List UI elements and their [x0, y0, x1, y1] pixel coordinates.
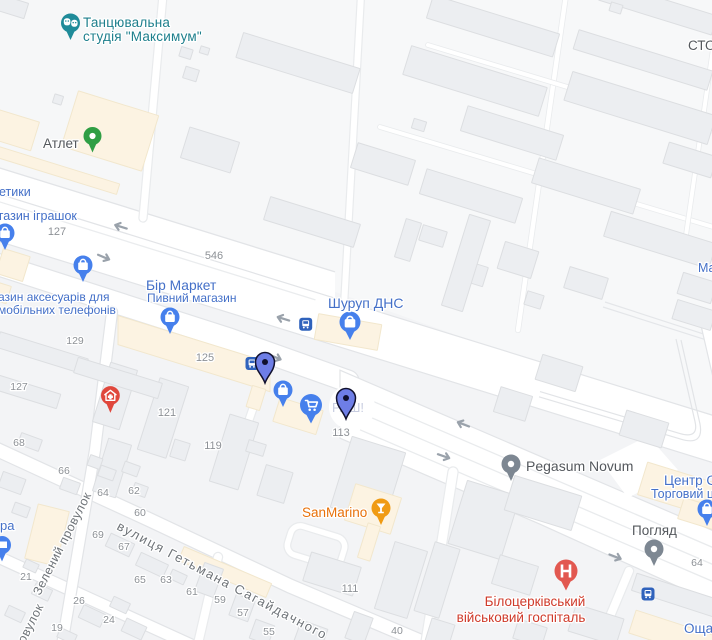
svg-text:40: 40: [391, 625, 403, 637]
svg-text:64: 64: [691, 557, 703, 569]
svg-text:Погляд: Погляд: [632, 523, 677, 538]
svg-text:Танцювальна: Танцювальна: [83, 15, 170, 30]
svg-text:Оща: Оща: [684, 621, 712, 636]
svg-text:Pegasum Novum: Pegasum Novum: [526, 458, 633, 474]
svg-text:SanMarino: SanMarino: [302, 505, 367, 520]
svg-text:111: 111: [342, 583, 359, 595]
svg-text:69: 69: [92, 529, 104, 541]
svg-text:125: 125: [196, 352, 214, 364]
svg-text:Пивний магазин: Пивний магазин: [147, 291, 236, 305]
svg-text:Мал: Мал: [698, 261, 712, 275]
svg-text:19: 19: [51, 622, 63, 634]
svg-text:етики: етики: [0, 185, 31, 199]
svg-text:127: 127: [10, 381, 28, 393]
svg-text:68: 68: [13, 437, 25, 449]
svg-text:мобільних телефонів: мобільних телефонів: [0, 303, 116, 317]
svg-text:57: 57: [237, 607, 249, 619]
svg-text:студія "Максимум": студія "Максимум": [83, 29, 202, 44]
svg-text:121: 121: [158, 407, 176, 419]
svg-text:24: 24: [103, 614, 115, 626]
svg-text:21: 21: [20, 571, 32, 583]
svg-text:СТО: СТО: [688, 38, 712, 53]
svg-text:Шуруп ДНС: Шуруп ДНС: [328, 295, 403, 311]
svg-text:азин аксесуарів для: азин аксесуарів для: [0, 290, 110, 304]
svg-text:газин іграшок: газин іграшок: [0, 209, 77, 223]
svg-text:Атлет: Атлет: [43, 136, 79, 151]
svg-text:військовий госпіталь: військовий госпіталь: [457, 610, 586, 625]
svg-text:Білоцерківський: Білоцерківський: [485, 594, 586, 609]
svg-text:61: 61: [186, 586, 198, 598]
svg-text:64: 64: [97, 487, 109, 499]
svg-text:63: 63: [160, 574, 172, 586]
svg-text:59: 59: [214, 594, 226, 606]
svg-text:55: 55: [263, 626, 275, 638]
svg-text:127: 127: [48, 226, 66, 238]
svg-text:26: 26: [73, 595, 85, 607]
svg-text:113: 113: [332, 427, 350, 439]
svg-text:ра: ра: [0, 518, 15, 533]
svg-text:67: 67: [118, 541, 130, 553]
svg-text:546: 546: [205, 250, 223, 262]
svg-text:60: 60: [134, 507, 146, 519]
svg-text:Центр С: Центр С: [664, 473, 712, 488]
svg-text:Торговий це: Торговий це: [651, 487, 712, 501]
svg-text:66: 66: [58, 465, 70, 477]
svg-text:129: 129: [66, 335, 84, 347]
svg-text:119: 119: [204, 440, 222, 452]
svg-text:65: 65: [134, 574, 146, 586]
svg-text:62: 62: [128, 485, 140, 497]
